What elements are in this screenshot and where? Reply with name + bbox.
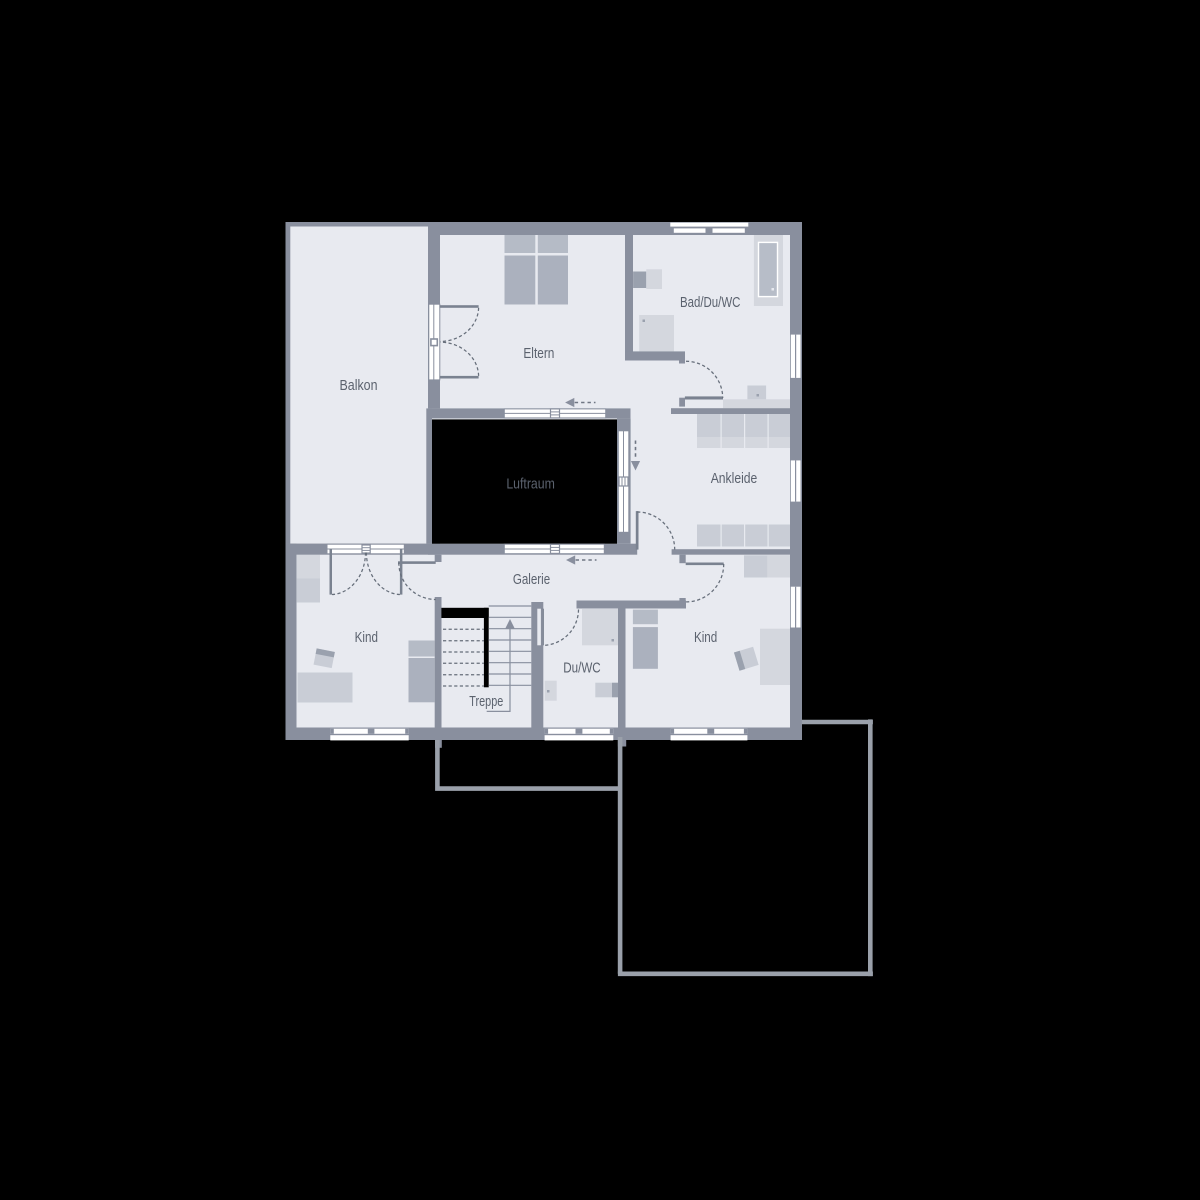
svg-text:Kind: Kind [355, 629, 378, 646]
svg-text:Galerie: Galerie [513, 571, 550, 588]
svg-text:Eltern: Eltern [523, 345, 554, 362]
svg-text:Du/WC: Du/WC [563, 660, 601, 677]
svg-text:Ankleide: Ankleide [711, 470, 758, 487]
svg-text:Bad/Du/WC: Bad/Du/WC [680, 294, 741, 311]
svg-text:Kind: Kind [694, 629, 717, 646]
svg-text:Treppe: Treppe [469, 693, 503, 710]
svg-text:Balkon: Balkon [340, 377, 378, 394]
svg-text:Luftraum: Luftraum [506, 476, 555, 493]
